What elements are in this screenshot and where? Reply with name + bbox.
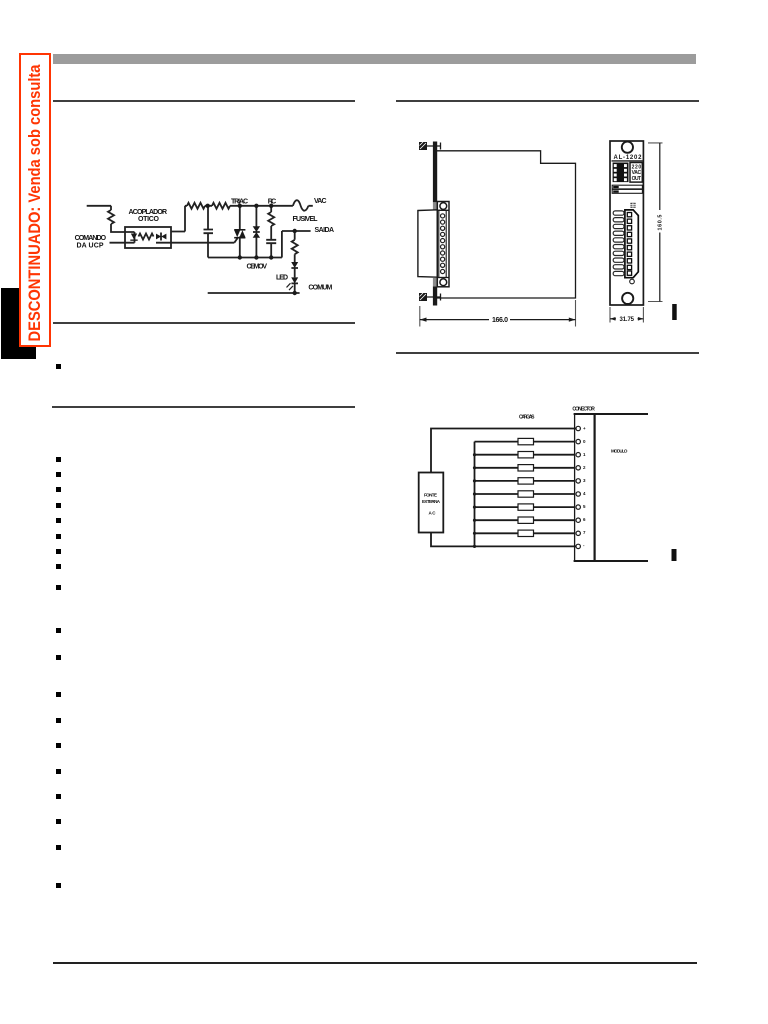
svg-text:FONTE: FONTE xyxy=(424,493,437,498)
svg-text:CARGAS: CARGAS xyxy=(519,415,535,421)
svg-text:OTICO: OTICO xyxy=(138,216,160,223)
svg-text:COMUM: COMUM xyxy=(308,285,332,292)
svg-text:31.75: 31.75 xyxy=(620,317,635,323)
svg-text:2: 2 xyxy=(583,465,586,470)
svg-text:SAIDA: SAIDA xyxy=(315,227,335,234)
svg-text:+: + xyxy=(583,426,586,431)
svg-text:FUSIVEL: FUSIVEL xyxy=(293,216,319,223)
svg-text:OUT: OUT xyxy=(632,176,642,182)
svg-text:CEMOV: CEMOV xyxy=(247,264,268,271)
svg-text:6: 6 xyxy=(583,517,586,522)
svg-text:ACOPLADOR: ACOPLADOR xyxy=(129,209,168,216)
svg-text:3: 3 xyxy=(583,478,586,483)
svg-text:DA UCP: DA UCP xyxy=(77,243,104,250)
svg-text:LED: LED xyxy=(276,275,288,282)
svg-text:MODULO: MODULO xyxy=(611,449,628,454)
svg-text:EXTERNA: EXTERNA xyxy=(422,499,441,504)
svg-text:1: 1 xyxy=(583,452,586,457)
svg-text:160.5: 160.5 xyxy=(658,215,664,231)
svg-text:7: 7 xyxy=(583,530,586,535)
svg-text:5: 5 xyxy=(583,504,586,509)
svg-text:AL-1202: AL-1202 xyxy=(614,155,643,161)
svg-text:COMANDO: COMANDO xyxy=(75,235,107,242)
svg-text:AC: AC xyxy=(429,511,437,516)
svg-text:VAC: VAC xyxy=(314,198,327,205)
svg-text:CONECTOR: CONECTOR xyxy=(572,407,595,413)
svg-text:RC: RC xyxy=(268,199,277,206)
svg-text:-: - xyxy=(583,543,585,548)
svg-text:0: 0 xyxy=(583,439,586,444)
svg-text:TRIAC: TRIAC xyxy=(231,199,248,206)
svg-text:4: 4 xyxy=(583,491,586,496)
svg-text:166.0: 166.0 xyxy=(492,317,508,324)
